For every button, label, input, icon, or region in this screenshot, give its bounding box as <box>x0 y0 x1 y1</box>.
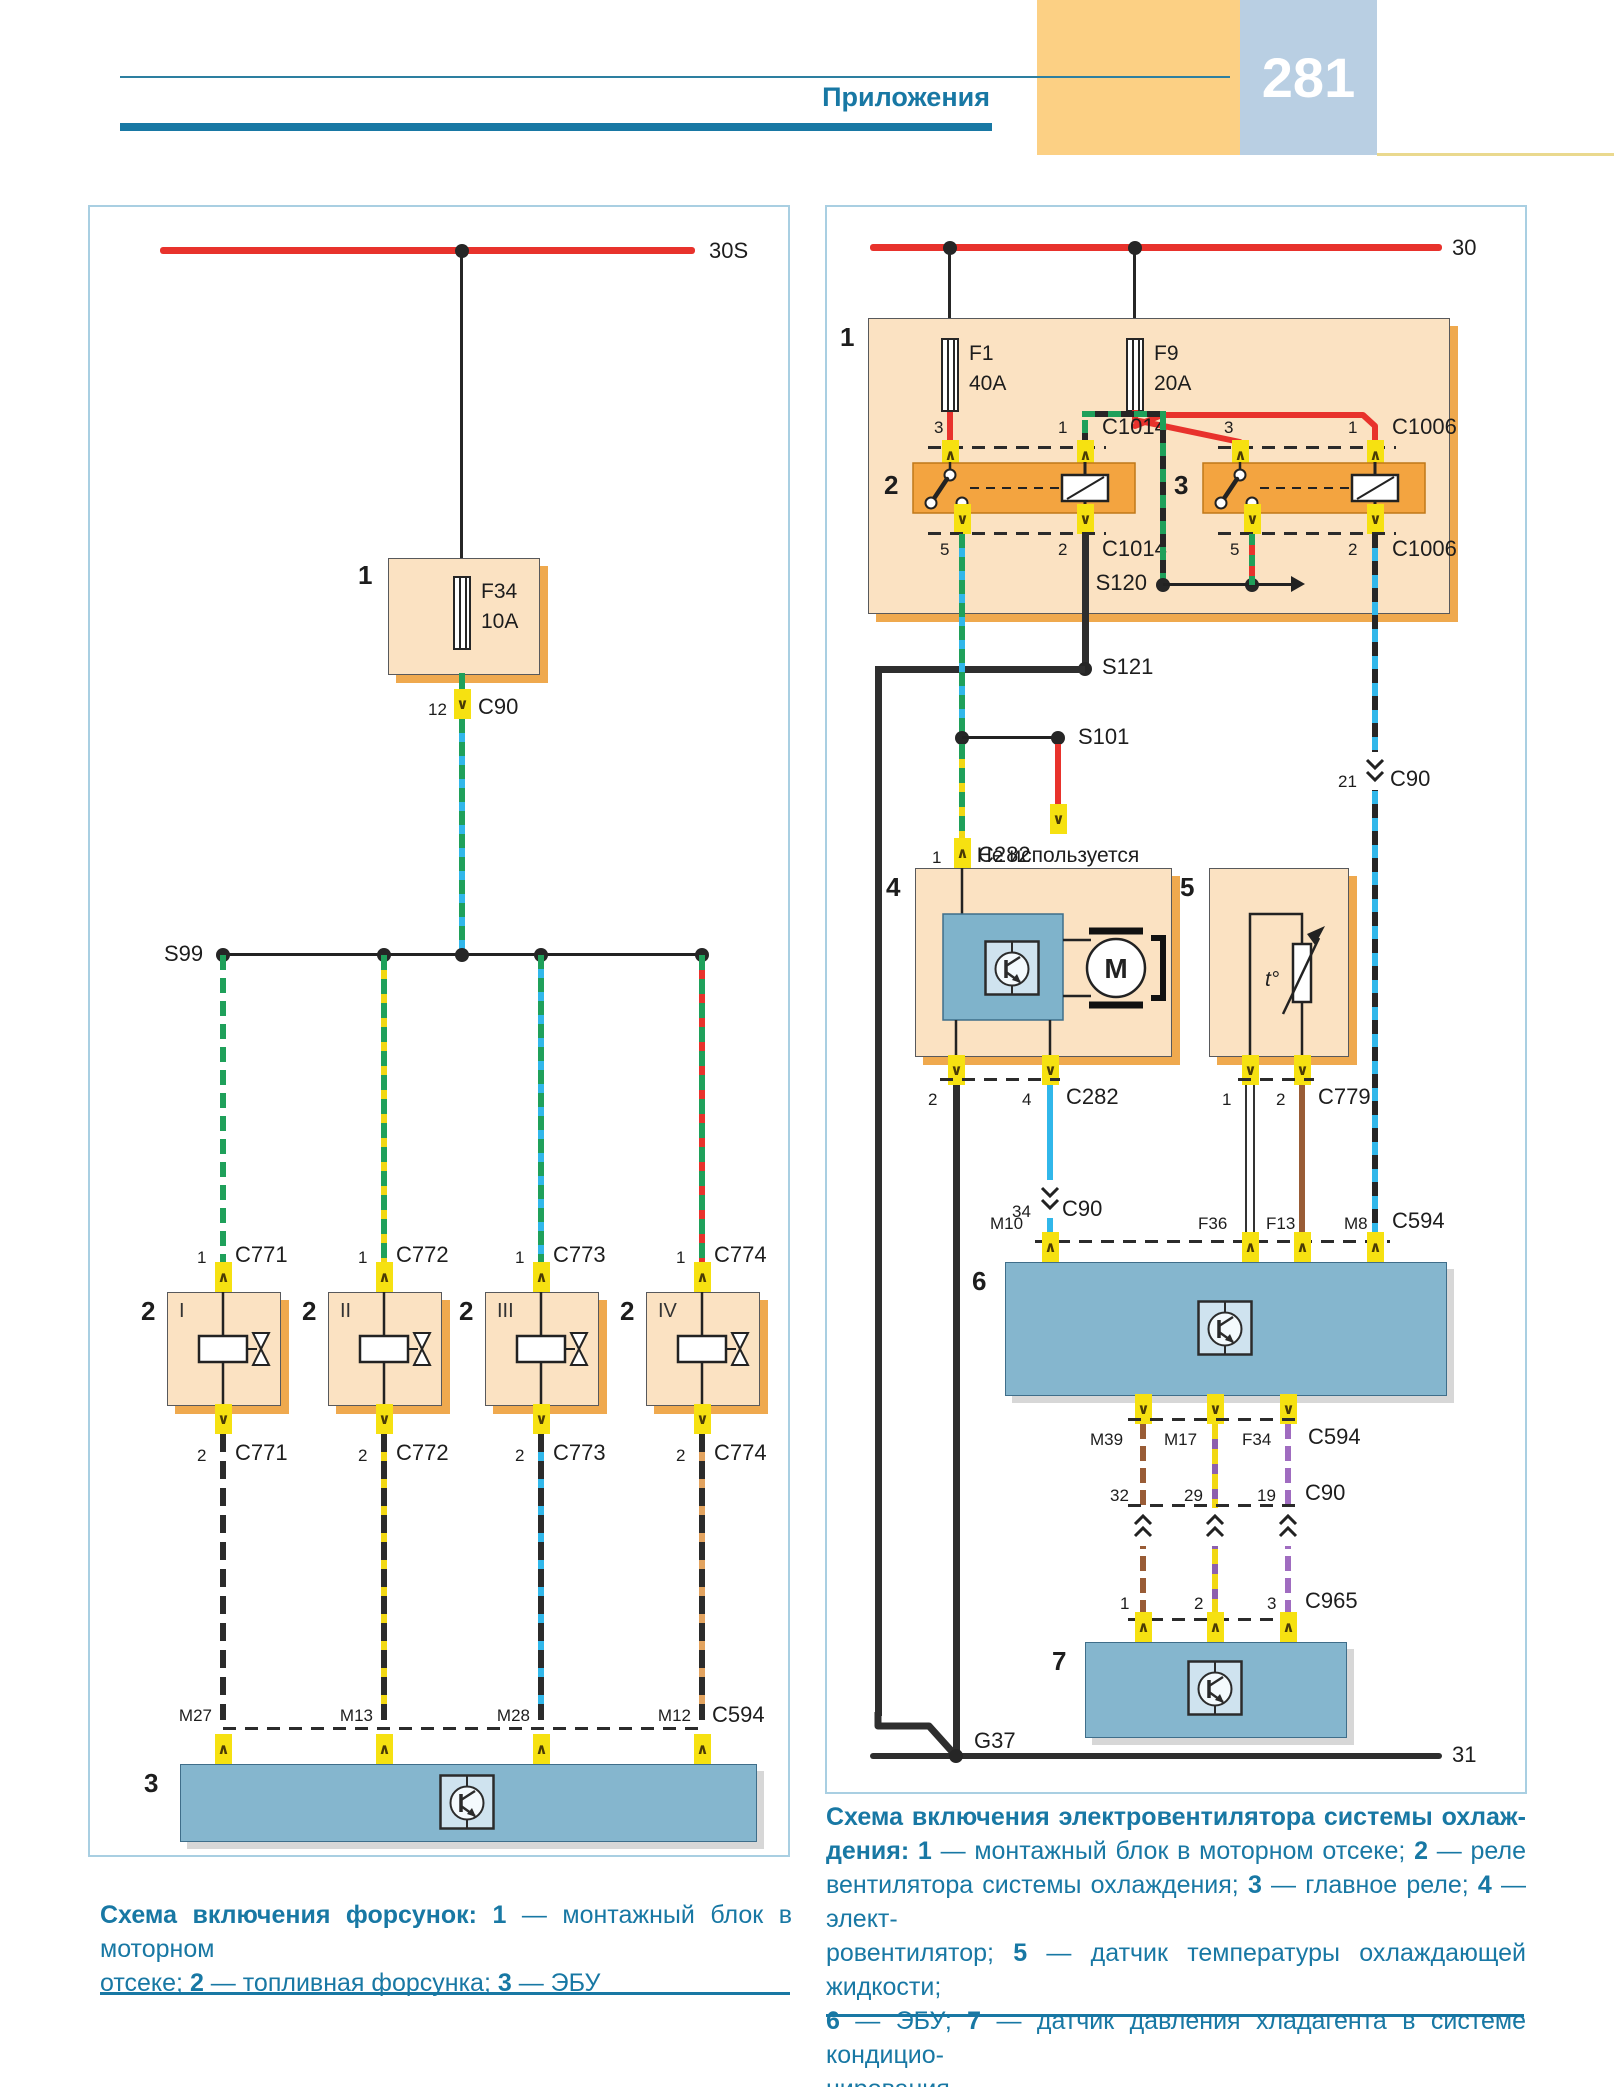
connector-line-c594 <box>223 1727 702 1730</box>
junction-dot <box>455 948 469 962</box>
chevron-up-icon: ∧ <box>696 1742 708 1757</box>
pin-label: 2 <box>1348 540 1357 560</box>
connector-label-c282: C282 <box>978 842 1031 868</box>
connector-line-c779 <box>1238 1078 1314 1081</box>
block1-number: 1 <box>840 322 854 353</box>
chevron-down-icon: ∨ <box>1244 1063 1256 1078</box>
wire-main-relay-out <box>1372 534 1378 1232</box>
connector-label-c90: C90 <box>478 694 518 720</box>
wire-injector3-feed <box>538 955 544 1262</box>
ecu-pin-m12: M12 <box>641 1706 691 1726</box>
pin-label: 1 <box>515 1248 524 1268</box>
wire-fan-feed <box>959 534 965 738</box>
fuse-f9 <box>1126 338 1144 412</box>
connector: ∧ <box>215 1734 232 1764</box>
chevron-up-icon: ∧ <box>1234 448 1246 463</box>
injector-number: 2 <box>459 1296 473 1327</box>
wire-injector4-feed <box>699 955 705 1262</box>
pin-label: 2 <box>676 1446 685 1466</box>
pin-label: 5 <box>1230 540 1239 560</box>
fuse-f34 <box>453 576 471 650</box>
wire-injector2-control <box>381 1434 387 1720</box>
pin-label: 2 <box>197 1446 206 1466</box>
connector: ∧ <box>1280 1612 1297 1642</box>
connector-label-c1014: C1014 <box>1102 414 1167 440</box>
connector: ∧ <box>1242 1232 1259 1262</box>
splice-s101-line <box>962 736 1058 739</box>
wire-relay3-pin5 <box>1249 534 1255 585</box>
ecu-pin-m8: M8 <box>1344 1214 1368 1234</box>
connector-label: C771 <box>235 1242 288 1268</box>
connector-line-c594-top <box>1035 1240 1390 1243</box>
connector: ∨ <box>1077 504 1094 534</box>
chevron-down-icon: ∨ <box>950 1063 962 1078</box>
ecu-pin-m28: M28 <box>480 1706 530 1726</box>
ecu-number: 3 <box>144 1768 158 1799</box>
wire-fan-ground <box>953 1085 960 1757</box>
fuse-f9-amps: 20A <box>1154 372 1191 396</box>
chevron-up-icon: ∧ <box>535 1270 547 1285</box>
connector-line-c90 <box>1128 1504 1303 1507</box>
ground-wire-horizontal <box>878 666 1085 673</box>
connector-label-c1014: C1014 <box>1102 536 1167 562</box>
right-caption-rule <box>826 2014 1524 2017</box>
chevron-up-icon: ∧ <box>944 448 956 463</box>
splice-label-s101: S101 <box>1078 724 1129 750</box>
chevron-up-icon: ∧ <box>1079 448 1091 463</box>
transistor-icon <box>984 940 1040 996</box>
connector-label: C772 <box>396 1242 449 1268</box>
pin-label: 1 <box>676 1248 685 1268</box>
connector: ∧ <box>1367 1232 1384 1262</box>
pin-label: 1 <box>932 848 941 868</box>
pin-label: 3 <box>934 418 943 438</box>
wire-injector4-control <box>699 1434 705 1720</box>
temp-sensor-symbol: t° <box>1209 868 1347 1055</box>
chevron-up-icon: ∧ <box>956 846 968 861</box>
pin-label: 3 <box>1224 418 1233 438</box>
pin-label: 3 <box>1267 1594 1276 1614</box>
connector-c90-12: ∨ <box>454 689 471 719</box>
temperature-label: t° <box>1265 968 1279 991</box>
ecu-pin-m13: M13 <box>323 1706 373 1726</box>
relay3-number: 3 <box>1174 470 1188 501</box>
wire-arrow-icon <box>1039 1180 1061 1218</box>
chevron-up-icon: ∧ <box>1209 1620 1221 1635</box>
fan-number: 4 <box>886 872 900 903</box>
sensor-number: 5 <box>1180 872 1194 903</box>
wire-sensor-signal <box>1245 1085 1255 1232</box>
left-diagram-frame <box>88 205 790 1857</box>
connector: ∨ <box>954 504 971 534</box>
connector: ∧ <box>215 1262 232 1292</box>
connector: ∨ <box>215 1404 232 1434</box>
chevron-up-icon: ∧ <box>1282 1620 1294 1635</box>
chevron-up-icon: ∧ <box>217 1270 229 1285</box>
connector-label: C772 <box>396 1440 449 1466</box>
wire-f1-out <box>947 412 953 442</box>
wire-sensor-return <box>1299 1085 1305 1232</box>
connector-label: C773 <box>553 1440 606 1466</box>
wire-arrow-icon <box>1204 1508 1226 1546</box>
pin-label: 2 <box>1058 540 1067 560</box>
wire-fan-feed-lower <box>959 744 965 838</box>
connector-c282-1: ∧ <box>954 838 971 868</box>
power-bus-30s <box>160 247 695 254</box>
injector-symbol <box>167 1292 279 1404</box>
splice-s120-line <box>1163 583 1291 586</box>
pin-label: 5 <box>940 540 949 560</box>
header-thin-rule <box>120 76 1230 78</box>
connector: ∨ <box>1050 804 1067 834</box>
transistor-icon <box>439 1774 495 1830</box>
wire-injector2-feed <box>381 955 387 1262</box>
junction-dot <box>1051 731 1065 745</box>
pin-label: 19 <box>1257 1486 1276 1506</box>
connector-label-c594: C594 <box>712 1702 765 1728</box>
connector-label-c594: C594 <box>1308 1424 1361 1450</box>
wire-s101-unused <box>1055 744 1061 804</box>
chevron-down-icon: ∨ <box>1044 1063 1056 1078</box>
chevron-up-icon: ∧ <box>1137 1620 1149 1635</box>
left-caption: Схема включения форсунок: 1 — монтажный … <box>100 1898 792 2000</box>
pin-label: 29 <box>1184 1486 1203 1506</box>
pin-label: 2 <box>515 1446 524 1466</box>
relay2-number: 2 <box>884 470 898 501</box>
transistor-icon <box>1187 1660 1243 1716</box>
manual-page: 281 Приложения 30S 1 F34 10A ∨ 12 C90 S9… <box>0 0 1614 2087</box>
pin-label: 2 <box>358 1446 367 1466</box>
chevron-down-icon: ∨ <box>696 1412 708 1427</box>
injector-symbol <box>485 1292 597 1404</box>
pin-label: 21 <box>1338 772 1357 792</box>
pin-label: 1 <box>197 1248 206 1268</box>
connector-label-c1006: C1006 <box>1392 536 1457 562</box>
ground-label-g37: G37 <box>974 1728 1016 1754</box>
pin-label: 32 <box>1110 1486 1129 1506</box>
chevron-down-icon: ∨ <box>1369 512 1381 527</box>
chevron-down-icon: ∨ <box>217 1412 229 1427</box>
ecu-pin-m39: M39 <box>1090 1430 1123 1450</box>
fuse-f1-name: F1 <box>969 342 994 366</box>
ecu-pin-m10: M10 <box>990 1214 1023 1234</box>
ecu-pin-f36: F36 <box>1198 1214 1227 1234</box>
block7-number: 7 <box>1052 1646 1066 1677</box>
wire-arrow-icon <box>1277 1508 1299 1546</box>
arrow-right-icon <box>1291 576 1305 592</box>
header-yellow-line <box>1377 153 1614 156</box>
pin-label: 4 <box>1022 1090 1031 1110</box>
splice-label-s121: S121 <box>1102 654 1153 680</box>
left-caption-rule <box>100 1992 790 1995</box>
relay-3 <box>1202 462 1426 514</box>
connector: ∧ <box>1294 1232 1311 1262</box>
header-thick-rule <box>120 123 992 131</box>
connector-label-c90: C90 <box>1062 1196 1102 1222</box>
connector: ∨ <box>694 1404 711 1434</box>
motor-label: M <box>1104 953 1127 984</box>
pin-label-12: 12 <box>428 700 447 720</box>
connector-line-c594-bottom <box>1128 1418 1303 1421</box>
bus-label-30s: 30S <box>709 238 748 264</box>
bus-label-31: 31 <box>1452 1742 1476 1768</box>
pin-label: 2 <box>1276 1090 1285 1110</box>
connector-line-c1014-bottom <box>928 532 1106 535</box>
wire-arrow-icon <box>1364 752 1386 790</box>
chevron-up-icon: ∧ <box>378 1742 390 1757</box>
connector-line-c1006-bottom <box>1218 532 1396 535</box>
connector: ∧ <box>694 1262 711 1292</box>
fuse-f34-name: F34 <box>481 580 517 604</box>
wire-bus-to-fuse <box>460 252 463 558</box>
connector-label: C771 <box>235 1440 288 1466</box>
pin-label: 1 <box>358 1248 367 1268</box>
connector-label: C774 <box>714 1440 767 1466</box>
connector-line-c282 <box>940 1078 1060 1081</box>
fuse-f1 <box>941 338 959 412</box>
connector-label: C773 <box>553 1242 606 1268</box>
chevron-up-icon: ∧ <box>1369 1240 1381 1255</box>
connector: ∨ <box>1244 504 1261 534</box>
connector: ∧ <box>533 1262 550 1292</box>
chevron-up-icon: ∧ <box>535 1742 547 1757</box>
wire-arrow-icon <box>1132 1508 1154 1546</box>
connector: ∨ <box>1367 504 1384 534</box>
connector: ∨ <box>533 1404 550 1434</box>
connector: ∧ <box>533 1734 550 1764</box>
fan-internal-diagram: M <box>915 868 1170 1055</box>
chevron-down-icon: ∨ <box>1079 512 1091 527</box>
wire-fuse-out <box>459 673 465 689</box>
chevron-up-icon: ∧ <box>1244 1240 1256 1255</box>
chevron-up-icon: ∧ <box>217 1742 229 1757</box>
transistor-icon <box>1197 1300 1253 1356</box>
chevron-up-icon: ∧ <box>1296 1240 1308 1255</box>
connector-label: C774 <box>714 1242 767 1268</box>
connector-label-c282: C282 <box>1066 1084 1119 1110</box>
fuse-f9-name: F9 <box>1154 342 1179 366</box>
chevron-down-icon: ∨ <box>1282 1402 1294 1417</box>
ecu-pin-f13: F13 <box>1266 1214 1295 1234</box>
chevron-down-icon: ∨ <box>456 697 468 712</box>
injector-symbol <box>328 1292 440 1404</box>
connector-label-c779: C779 <box>1318 1084 1371 1110</box>
connector: ∧ <box>1042 1232 1059 1262</box>
page-number: 281 <box>1240 0 1377 155</box>
injector-number: 2 <box>620 1296 634 1327</box>
right-caption: Схема включения электровентилятора систе… <box>826 1800 1526 2087</box>
junction-dot <box>949 1749 963 1763</box>
connector-label-c90: C90 <box>1390 766 1430 792</box>
chevron-down-icon: ∨ <box>1246 512 1258 527</box>
connector-label-c90: C90 <box>1305 1480 1345 1506</box>
pin-label: 1 <box>1222 1090 1231 1110</box>
wire-injector3-control <box>538 1434 544 1720</box>
ecu-number: 6 <box>972 1266 986 1297</box>
chevron-down-icon: ∨ <box>378 1412 390 1427</box>
wire-relay2-coil-jumper <box>1082 420 1088 440</box>
relay-2 <box>912 462 1136 514</box>
chevron-up-icon: ∧ <box>696 1270 708 1285</box>
connector-label-c594: C594 <box>1392 1208 1445 1234</box>
connector-label-c1006: C1006 <box>1392 414 1457 440</box>
bus-label-30: 30 <box>1452 235 1476 261</box>
wire-jumper-to-s120 <box>1160 417 1166 585</box>
connector: ∧ <box>1207 1612 1224 1642</box>
wire-injector1-control <box>220 1434 226 1720</box>
ground-wire-left <box>875 666 882 1716</box>
block1-number: 1 <box>358 560 372 591</box>
connector: ∨ <box>376 1404 393 1434</box>
ecu-pin-m17: M17 <box>1164 1430 1197 1450</box>
injector-number: 2 <box>302 1296 316 1327</box>
page-title: Приложения <box>620 82 990 113</box>
connector: ∧ <box>376 1734 393 1764</box>
fuse-f34-amps: 10A <box>481 610 518 634</box>
chevron-up-icon: ∧ <box>1369 448 1381 463</box>
pin-label: 1 <box>1058 418 1067 438</box>
ecu-pin-f34: F34 <box>1242 1430 1271 1450</box>
connector: ∧ <box>376 1262 393 1292</box>
splice-label-s99: S99 <box>164 941 203 967</box>
chevron-down-icon: ∨ <box>956 512 968 527</box>
connector: ∧ <box>694 1734 711 1764</box>
chevron-down-icon: ∨ <box>1209 1402 1221 1417</box>
chevron-up-icon: ∧ <box>1044 1240 1056 1255</box>
fuse-f1-amps: 40A <box>969 372 1006 396</box>
chevron-up-icon: ∧ <box>378 1270 390 1285</box>
injector-number: 2 <box>141 1296 155 1327</box>
chevron-down-icon: ∨ <box>1296 1063 1308 1078</box>
chevron-down-icon: ∨ <box>535 1412 547 1427</box>
chevron-down-icon: ∨ <box>1052 812 1064 827</box>
pin-label: 2 <box>928 1090 937 1110</box>
ecu-pin-m27: M27 <box>162 1706 212 1726</box>
wire-feed-green-blue <box>459 719 465 955</box>
injector-symbol <box>646 1292 758 1404</box>
wire-relay2-pin2 <box>1082 534 1089 669</box>
wire-relay2-coil-jumper <box>1082 411 1166 417</box>
pin-label: 2 <box>1194 1594 1203 1614</box>
pin-label: 1 <box>1120 1594 1129 1614</box>
pin-label: 1 <box>1348 418 1357 438</box>
wire-injector1-feed <box>220 955 226 1262</box>
connector: ∧ <box>1135 1612 1152 1642</box>
chevron-down-icon: ∨ <box>1137 1402 1149 1417</box>
connector-label-c965: C965 <box>1305 1588 1358 1614</box>
